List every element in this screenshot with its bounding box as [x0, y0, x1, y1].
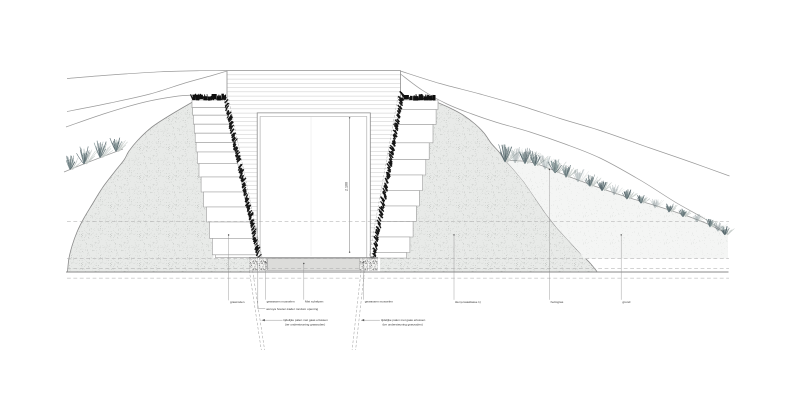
svg-text:Met schelpen: Met schelpen [305, 299, 324, 303]
svg-text:gewassen mosselen: gewassen mosselen [267, 299, 295, 303]
svg-text:graszoden: graszoden [230, 300, 245, 304]
svg-text:gewassen mosselen: gewassen mosselen [365, 299, 393, 303]
svg-text:(ter ondersteuning graszoden): (ter ondersteuning graszoden) [285, 322, 325, 326]
svg-text:helmgras: helmgras [551, 300, 564, 304]
svg-text:2.100: 2.100 [344, 182, 348, 191]
svg-text:klei (erosieklasse 1): klei (erosieklasse 1) [455, 300, 481, 304]
svg-text:accoya houten kader rondom ope: accoya houten kader rondom opening [266, 307, 318, 311]
svg-text:grond: grond [622, 300, 630, 304]
svg-text:(ter ondersteuning graszoden): (ter ondersteuning graszoden) [383, 322, 423, 326]
